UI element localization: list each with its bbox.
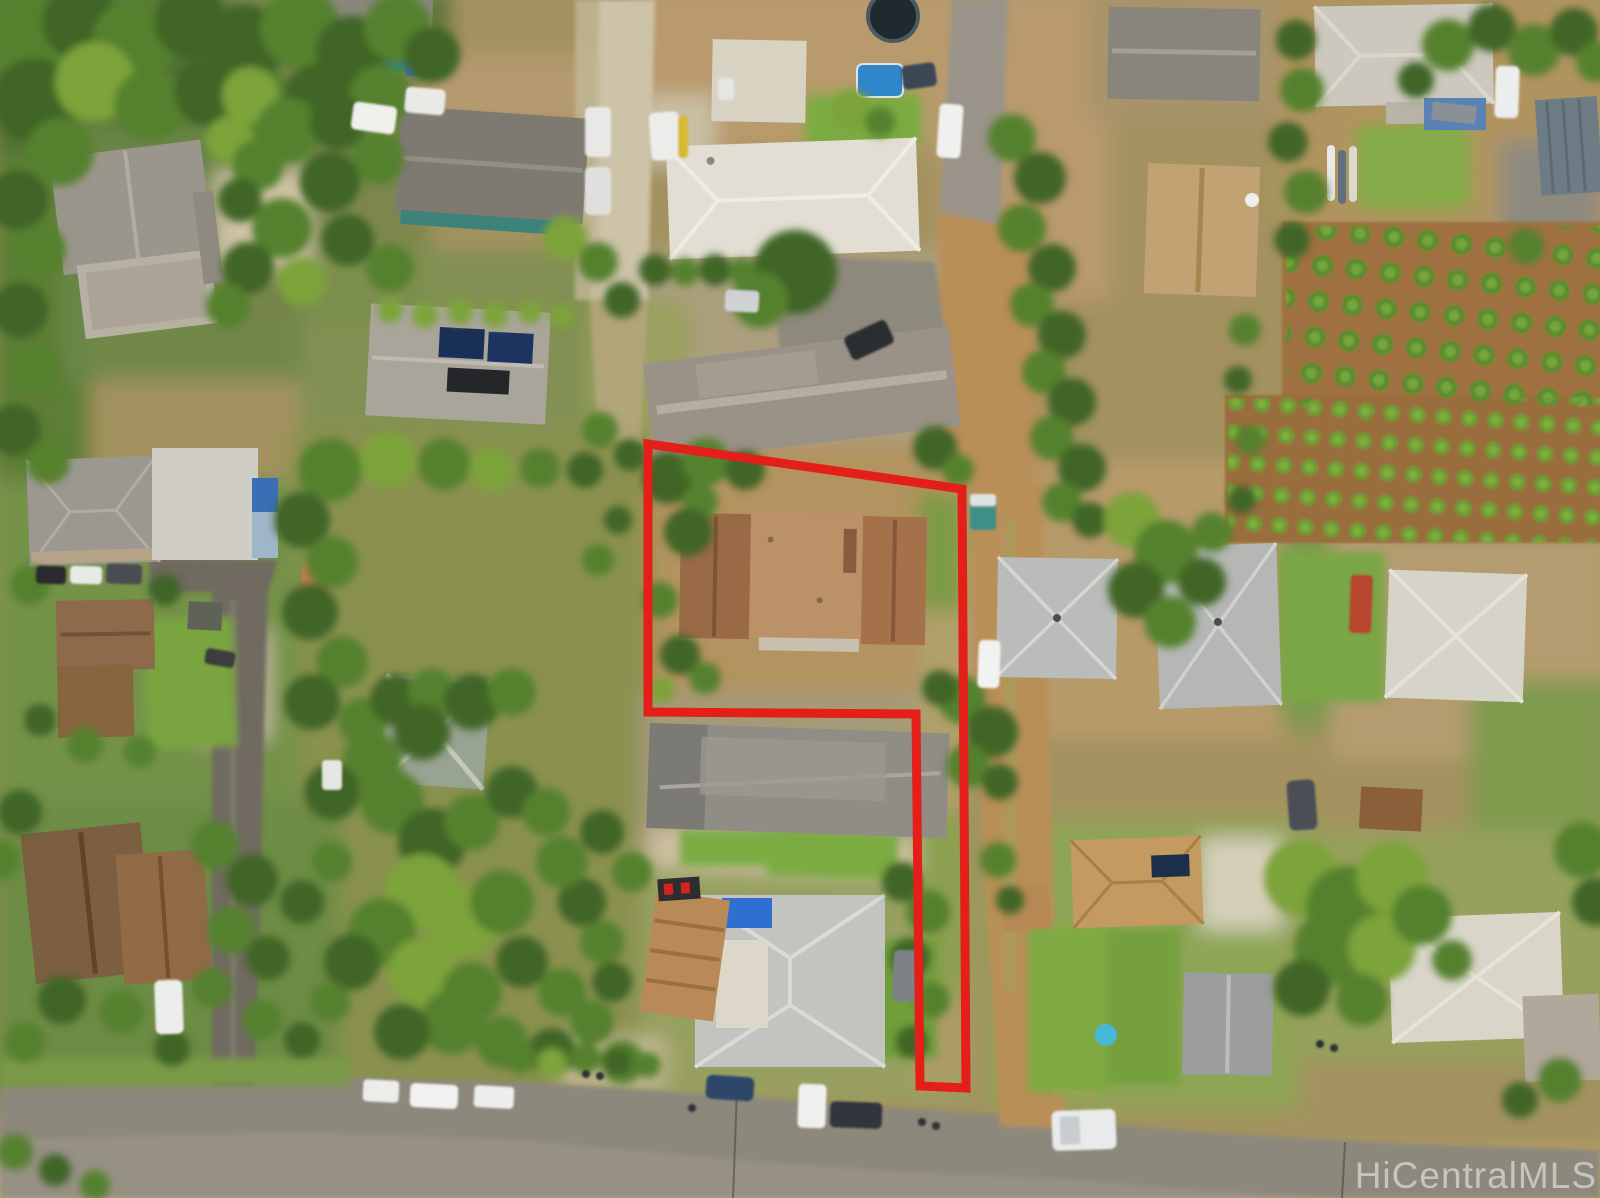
car-white	[70, 565, 103, 584]
carport-silver	[152, 448, 258, 560]
car-white	[585, 167, 611, 215]
house-white-hip-east	[1385, 570, 1527, 703]
watermark: HiCentralMLS	[1355, 1155, 1597, 1196]
kayak-yellow	[678, 116, 688, 158]
van-white	[404, 86, 446, 115]
trash-bin	[1330, 1044, 1338, 1052]
trash-bin	[582, 1070, 590, 1078]
solar-array	[438, 327, 485, 359]
solar-panel	[1151, 854, 1190, 877]
house-gravel-roof	[646, 723, 949, 838]
suv-dark-blue	[900, 62, 937, 90]
truck-red	[1349, 575, 1373, 634]
rv-white	[1051, 1109, 1116, 1151]
car-white-small	[322, 760, 342, 790]
shed-corrugated	[1182, 972, 1274, 1076]
house-gray-gable-ne	[1107, 7, 1261, 102]
car-white	[154, 980, 184, 1035]
car-white-small	[718, 78, 734, 100]
suv-silver	[724, 289, 759, 313]
car-white	[1494, 66, 1520, 119]
truck-white	[936, 103, 964, 159]
car-white	[648, 111, 681, 161]
satellite-dish	[1245, 193, 1259, 207]
house-gray-hip-1	[996, 557, 1118, 679]
house-orange-roof	[1071, 836, 1204, 928]
trash-bin	[918, 1118, 926, 1126]
sedan-dark	[1286, 779, 1317, 831]
house-tan-east	[1144, 163, 1260, 297]
sign-panel	[657, 876, 700, 901]
aerial-photo-canvas: HiCentralMLS	[0, 0, 1600, 1198]
round-pool	[868, 0, 918, 41]
pickup-white	[977, 640, 1001, 689]
shed-dark	[187, 601, 222, 631]
van-dark	[106, 563, 143, 584]
car-white	[585, 107, 611, 157]
shed-rusty	[1359, 786, 1423, 831]
rv-tarp-blue	[252, 478, 278, 512]
metal-building-east	[1535, 96, 1600, 196]
trash-bin	[688, 1104, 696, 1112]
truck-teal	[970, 494, 996, 530]
pickup-white	[409, 1083, 458, 1109]
van-white	[797, 1084, 827, 1129]
subject-house	[679, 510, 927, 653]
kayaks	[1327, 145, 1357, 204]
car-black	[36, 565, 67, 584]
car-white	[362, 1079, 399, 1103]
trash-bin	[932, 1122, 940, 1130]
aerial-photo: HiCentralMLS	[0, 0, 1600, 1198]
trash-bin	[596, 1072, 604, 1080]
car-white	[473, 1085, 514, 1109]
trash-bin	[1316, 1040, 1324, 1048]
kiddie-pool	[1095, 1024, 1117, 1046]
solar-collectors	[447, 367, 510, 394]
blue-pool	[857, 64, 903, 97]
solar-array	[487, 332, 534, 364]
sedan-blue	[705, 1074, 755, 1101]
suv-dark	[830, 1101, 883, 1129]
